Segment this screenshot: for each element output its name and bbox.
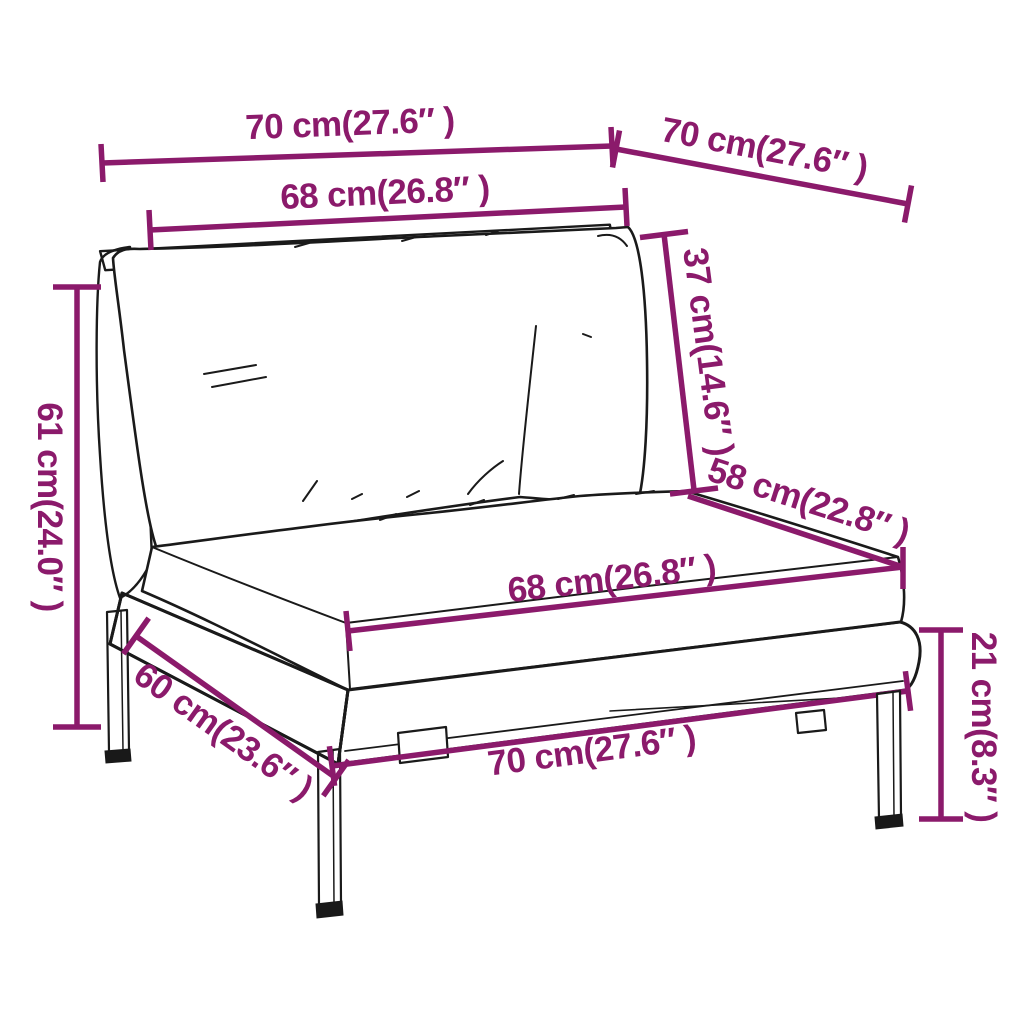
- dimension-top-width: 70 cm(27.6″ ): [101, 100, 613, 182]
- dimension-label-top-width: 70 cm(27.6″ ): [245, 100, 456, 147]
- dimension-leg-base-height: 21 cm(8.3″ ): [919, 630, 1003, 822]
- front-right-leg: [875, 691, 903, 829]
- dimension-label-overall-height: 61 cm(24.0″ ): [30, 402, 69, 611]
- dimension-label-base-front-width: 70 cm(27.6″ ): [485, 718, 698, 784]
- furniture-dimension-diagram: 70 cm(27.6″ ) 70 cm(27.6″ ) 68 cm(26.8″ …: [0, 0, 1024, 1024]
- base-bracket-right: [796, 710, 826, 733]
- dimension-label-base-depth: 60 cm(23.6″ ): [127, 655, 320, 808]
- dimension-top-depth: 70 cm(27.6″ ): [613, 110, 912, 222]
- dimension-label-leg-base-height: 21 cm(8.3″ ): [964, 632, 1003, 823]
- dimension-label-backrest-width: 68 cm(26.8″ ): [279, 169, 490, 217]
- dimension-diagram-canvas: 70 cm(27.6″ ) 70 cm(27.6″ ) 68 cm(26.8″ …: [0, 0, 1024, 1024]
- dimension-overall-height: 61 cm(24.0″ ): [30, 287, 101, 727]
